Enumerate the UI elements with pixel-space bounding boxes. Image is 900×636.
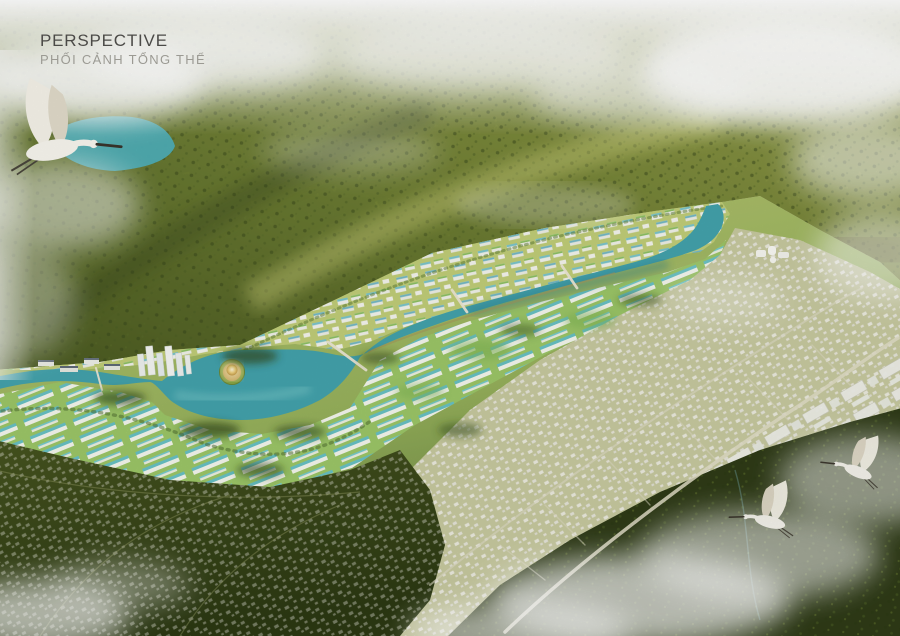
perspective-rendering: PERSPECTIVE PHỐI CẢNH TỔNG THỂ <box>0 0 900 636</box>
scene-svg <box>0 0 900 636</box>
film-grain <box>0 0 900 636</box>
page-subtitle: PHỐI CẢNH TỔNG THỂ <box>40 52 206 68</box>
page-title: PERSPECTIVE <box>40 31 206 51</box>
title-block: PERSPECTIVE PHỐI CẢNH TỔNG THỂ <box>40 31 206 67</box>
